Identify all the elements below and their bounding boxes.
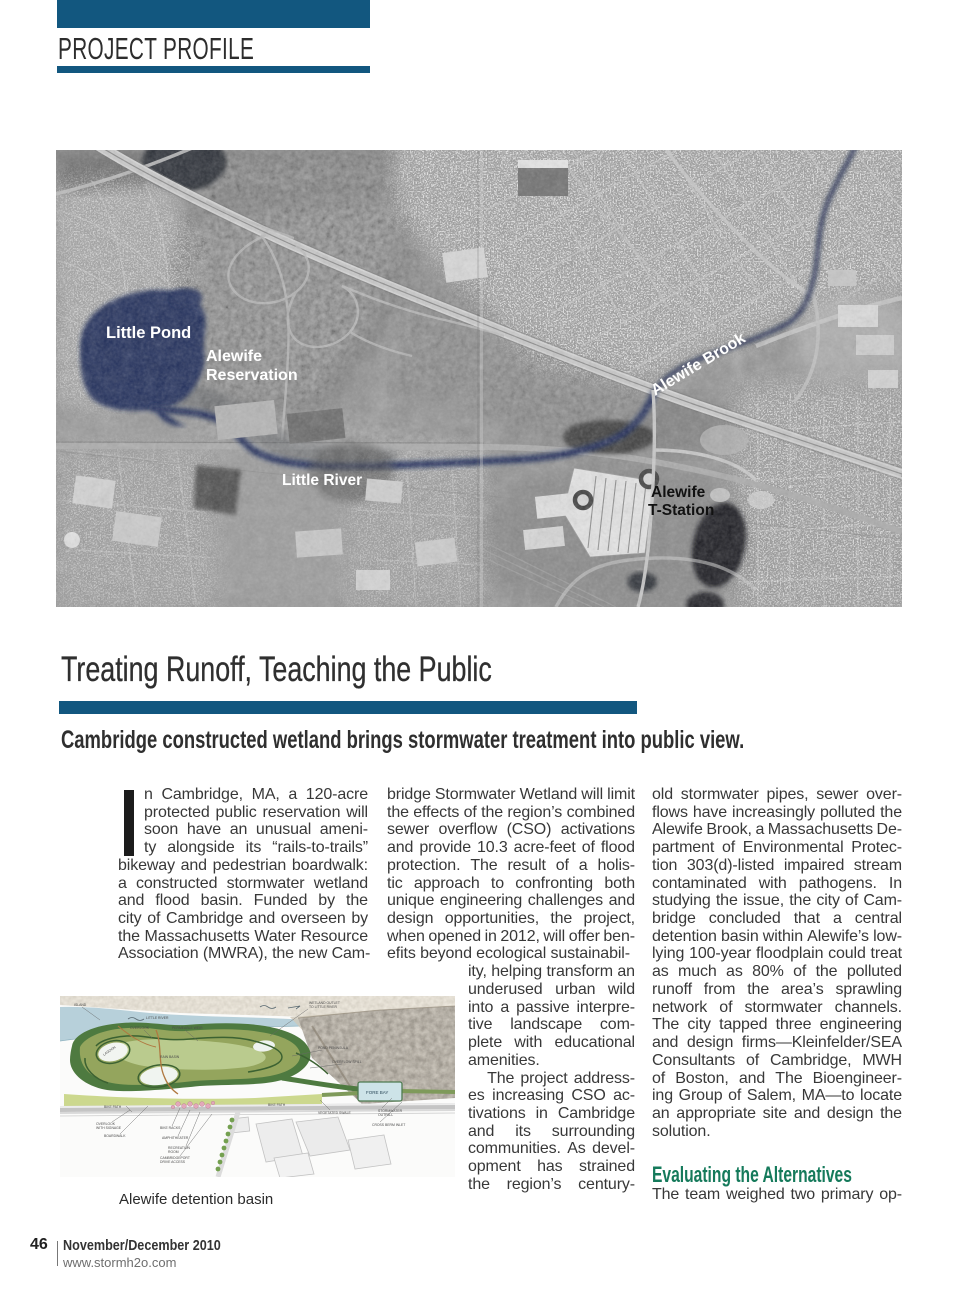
- svg-text:RAIN BASIN: RAIN BASIN: [160, 1055, 180, 1059]
- svg-text:PERMEABLE WEIR: PERMEABLE WEIR: [172, 1026, 203, 1030]
- svg-text:Little River: Little River: [282, 472, 362, 489]
- svg-text:WITH SIGNAGE: WITH SIGNAGE: [96, 1126, 122, 1130]
- svg-text:LITTLE RIVER: LITTLE RIVER: [146, 1016, 169, 1020]
- svg-text:TO LITTLE RIVER: TO LITTLE RIVER: [309, 1005, 338, 1009]
- svg-text:FORE BAY: FORE BAY: [366, 1090, 388, 1095]
- svg-text:OVERLOOK: OVERLOOK: [130, 1026, 150, 1030]
- svg-text:Alewife: Alewife: [206, 348, 262, 365]
- svg-text:VEGETATED SWALE: VEGETATED SWALE: [318, 1111, 351, 1115]
- svg-text:Little Pond: Little Pond: [106, 324, 191, 342]
- svg-text:ROOM: ROOM: [168, 1150, 179, 1154]
- svg-text:DRIVE ACCESS: DRIVE ACCESS: [160, 1160, 186, 1164]
- svg-text:ISLAND: ISLAND: [74, 1003, 87, 1007]
- svg-text:POND PENINSULA: POND PENINSULA: [318, 1046, 349, 1050]
- svg-text:AMPHITHEATER: AMPHITHEATER: [162, 1136, 189, 1140]
- svg-text:CROSS BERM INLET: CROSS BERM INLET: [372, 1123, 405, 1127]
- svg-text:BIKE PATH: BIKE PATH: [104, 1105, 122, 1109]
- svg-text:Alewife: Alewife: [651, 484, 706, 501]
- svg-text:OVERFLOW SPILL: OVERFLOW SPILL: [332, 1060, 362, 1064]
- svg-text:BIKE RACKS: BIKE RACKS: [160, 1126, 181, 1130]
- svg-text:OUTFALL: OUTFALL: [378, 1113, 393, 1117]
- svg-text:Reservation: Reservation: [206, 367, 298, 384]
- svg-text:T-Station: T-Station: [648, 502, 714, 519]
- svg-text:BIKE PATH: BIKE PATH: [268, 1103, 286, 1107]
- svg-text:BOARDWALK: BOARDWALK: [104, 1134, 126, 1138]
